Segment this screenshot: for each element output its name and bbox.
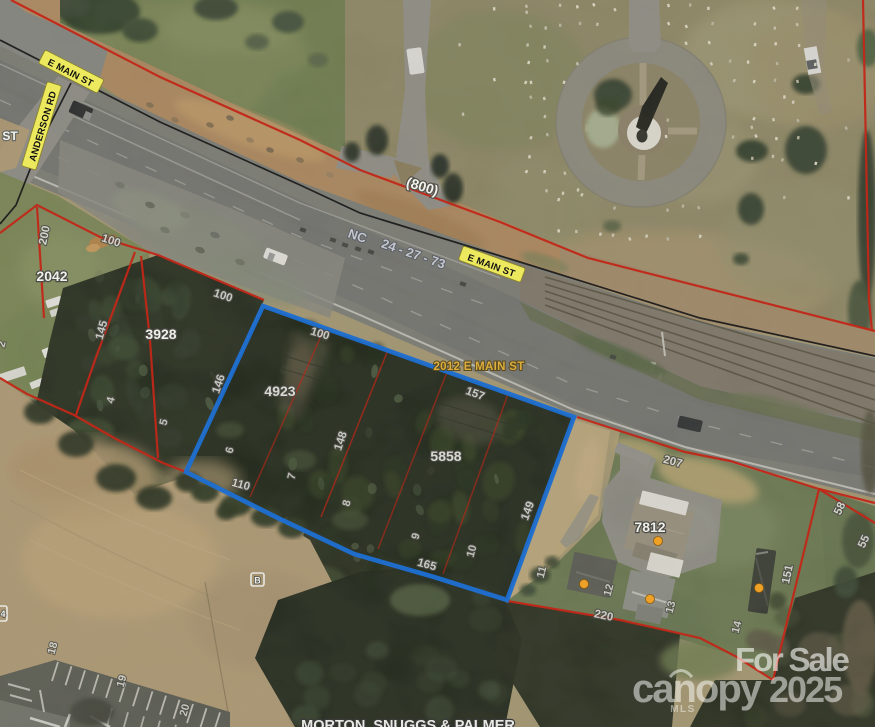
svg-text:B: B	[254, 576, 261, 586]
svg-text:canopy: canopy	[632, 667, 763, 711]
svg-text:2042: 2042	[36, 268, 67, 284]
svg-text:5858: 5858	[430, 448, 461, 464]
svg-text:2012 E MAIN ST: 2012 E MAIN ST	[433, 361, 524, 373]
svg-text:ST: ST	[2, 129, 18, 143]
svg-text:3928: 3928	[145, 326, 176, 342]
svg-text:MORTON, SNUGGS & PALMER: MORTON, SNUGGS & PALMER	[301, 718, 515, 727]
svg-text:2025: 2025	[769, 669, 843, 710]
svg-text:MLS: MLS	[670, 704, 696, 715]
svg-text:4: 4	[0, 609, 5, 619]
svg-text:4923: 4923	[264, 383, 295, 399]
svg-text:7812: 7812	[634, 519, 665, 535]
